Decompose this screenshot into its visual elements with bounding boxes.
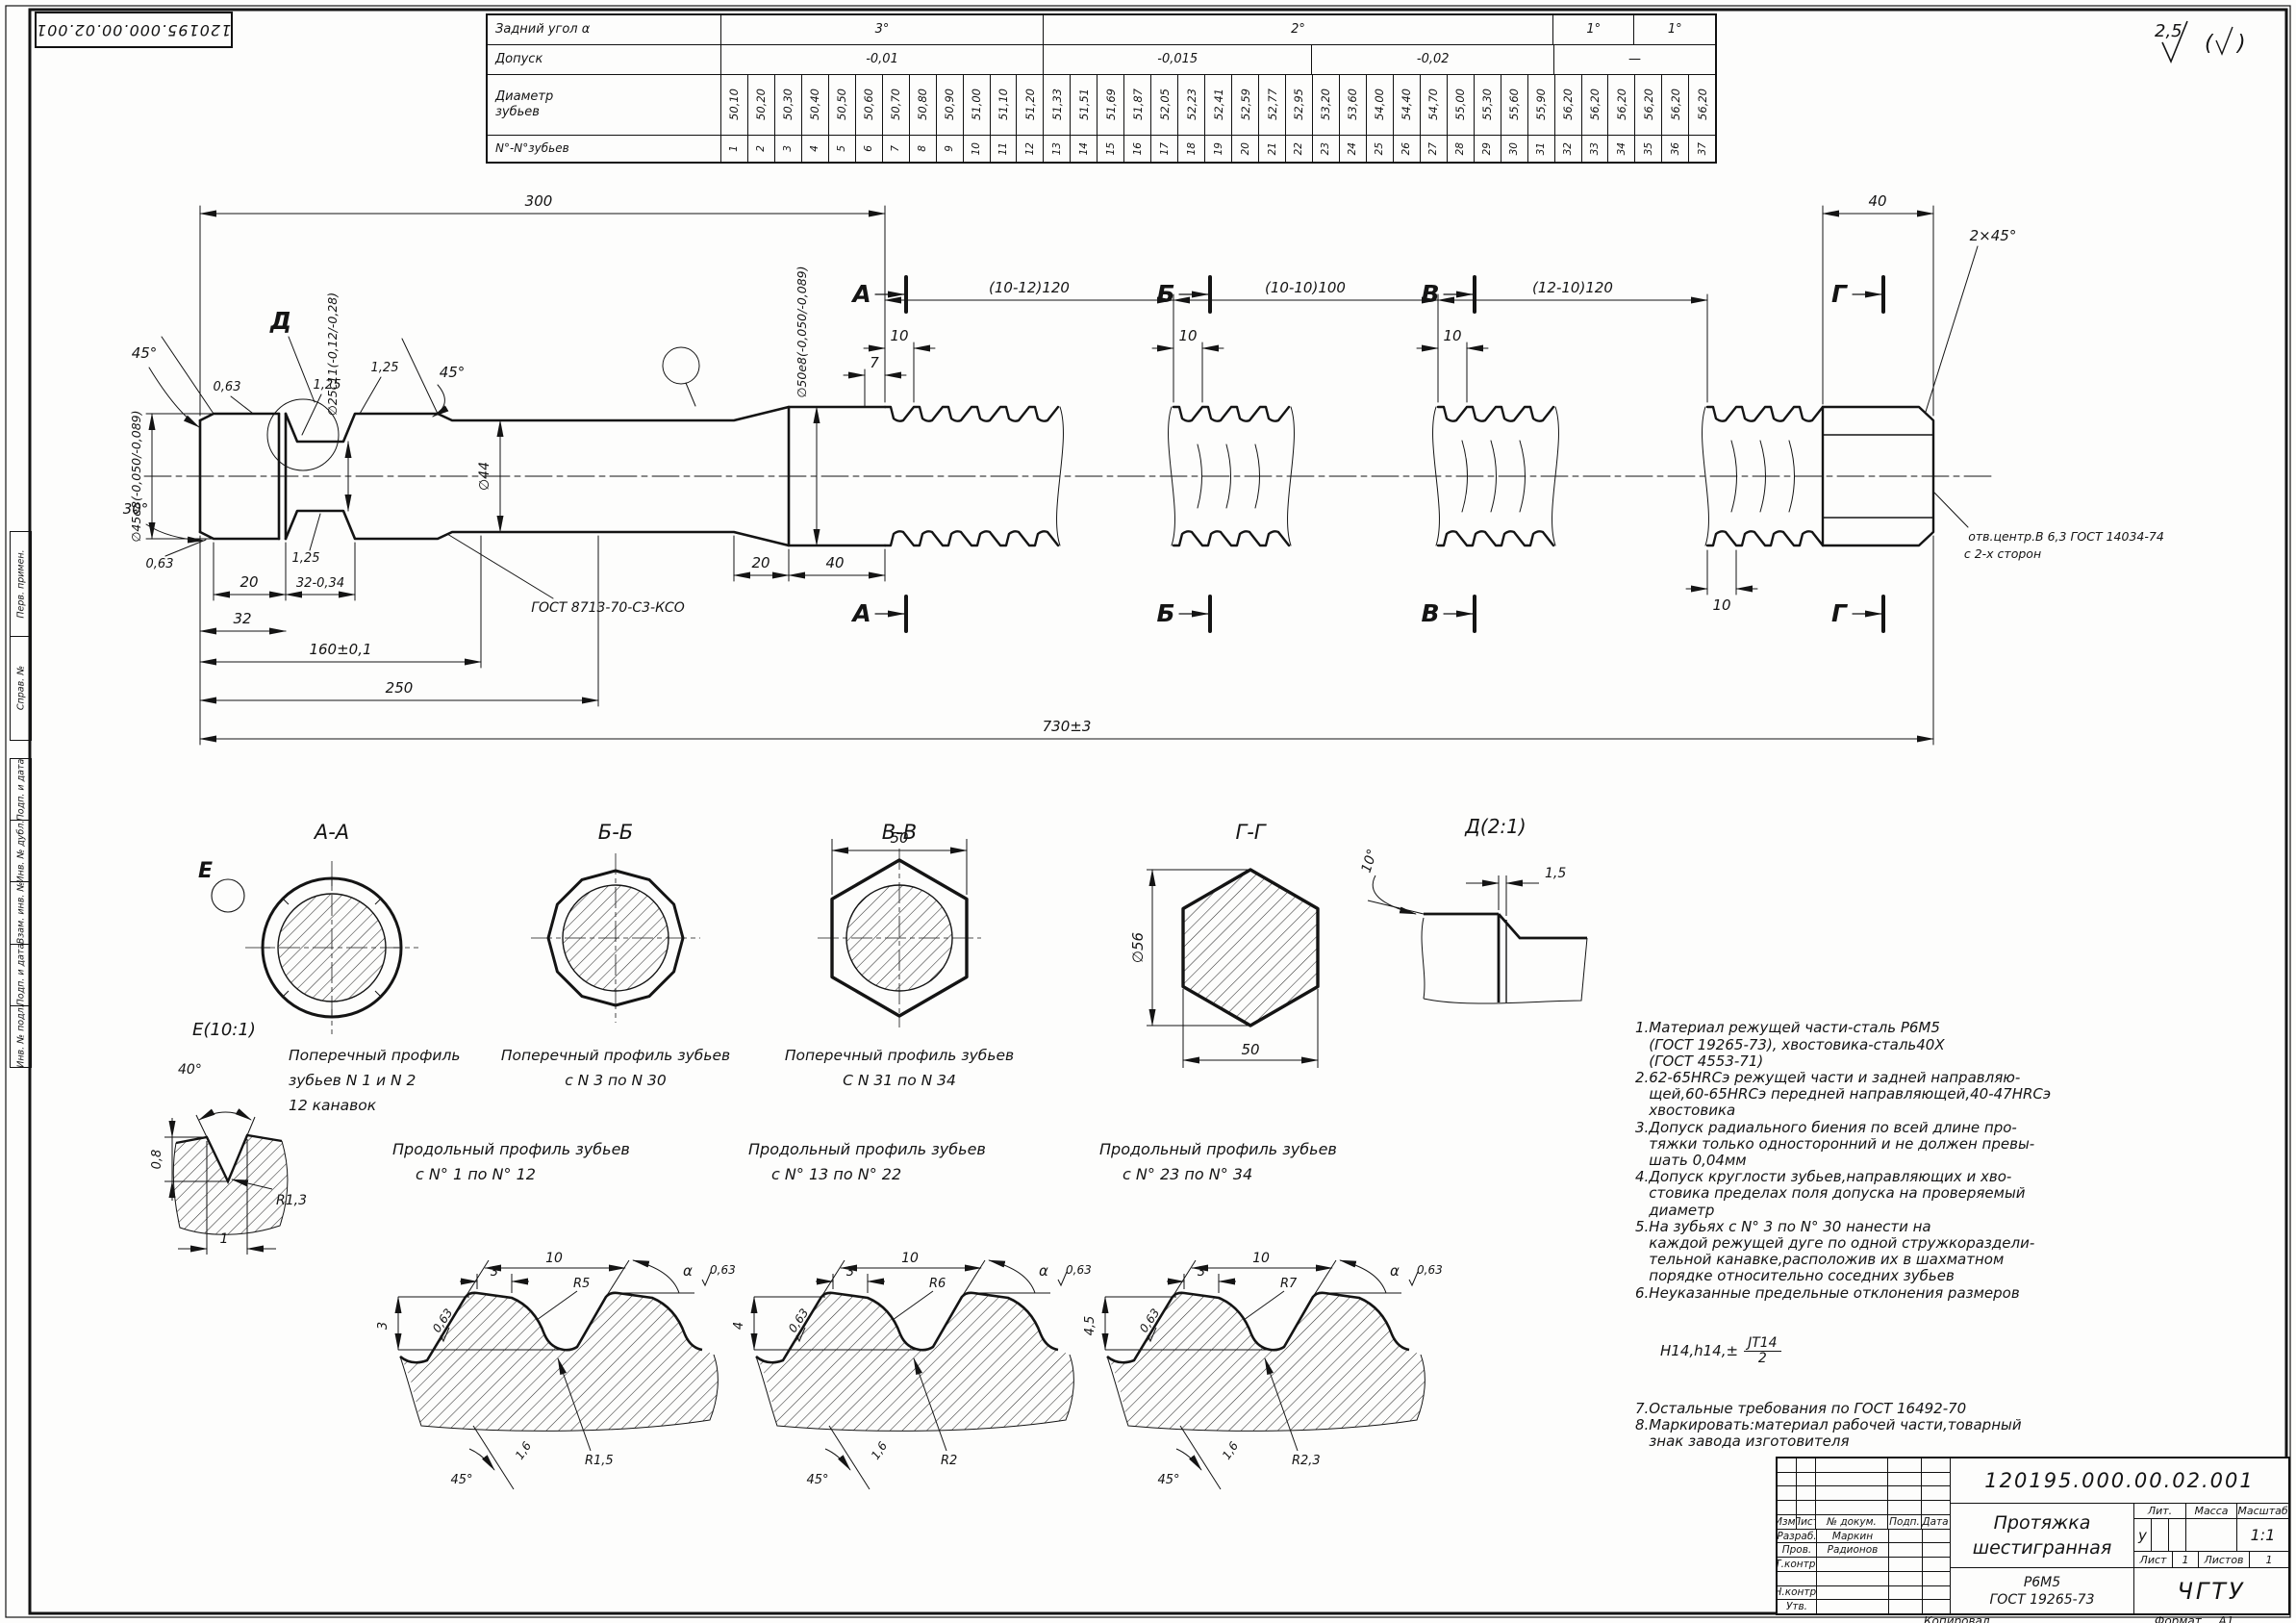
diameter-cell: 51,87 — [1124, 75, 1151, 136]
tb-sheets-value: 1 — [2250, 1552, 2288, 1568]
dia-50: ∅50e8(-0,050/-0,089) — [795, 266, 809, 398]
tooth-number-cell: 12 — [1017, 136, 1044, 162]
profile-1: 10 3 3 R5 0,63 α 0,63 45° 1,6 R1,5 — [376, 1251, 736, 1489]
diameter-cell: 51,20 — [1017, 75, 1044, 136]
tooth-number-cell: 23 — [1313, 136, 1340, 162]
drawing-sheet: А А Б Б В В Г Г Д 300 (10-12)120 (10-10)… — [0, 0, 2296, 1623]
tech-lines-b: 7.Остальные требования по ГОСТ 16492-708… — [1635, 1401, 2116, 1451]
section-letter-g-bottom: Г — [1831, 599, 1849, 627]
diameter-cell: 52,59 — [1232, 75, 1259, 136]
tooth-number-cell: 2 — [748, 136, 775, 162]
diameter-cell: 50,70 — [883, 75, 910, 136]
angle-group-3: 1° — [1553, 15, 1635, 44]
tolerance-group-3: -0,02 — [1312, 45, 1554, 74]
section-vv: В-В 50 Поперечный профиль зубьев С N 31 … — [785, 821, 1014, 1089]
diameter-cell: 55,00 — [1448, 75, 1475, 136]
tooth-number-cell: 13 — [1044, 136, 1071, 162]
diameter-cell: 52,77 — [1259, 75, 1286, 136]
dim-group1: (10-12)120 — [989, 279, 1070, 296]
angle-45-b: 45° — [440, 364, 466, 381]
dim-group2: (10-10)100 — [1265, 279, 1346, 296]
p2-alpha: α — [1039, 1262, 1048, 1280]
p3-rough-16: 1,6 — [1220, 1439, 1241, 1462]
p2-land: 3 — [846, 1265, 854, 1280]
profile1-title-1: Продольный профиль зубьев — [392, 1140, 630, 1158]
profiles-row: Продольный профиль зубьев с N° 1 по N° 1… — [376, 1140, 1443, 1489]
angle-45-a: 45° — [132, 344, 158, 362]
diameter-cell: 52,05 — [1151, 75, 1178, 136]
p2-height: 4 — [732, 1322, 746, 1330]
tech-line: каждой режущей дуге по одной стружкоразд… — [1635, 1235, 2116, 1252]
section-letter-g-top: Г — [1831, 280, 1849, 308]
tb-material: Р6М5 ГОСТ 19265-73 — [1950, 1568, 2134, 1613]
section-vv-caption-2: С N 31 по N 34 — [843, 1072, 956, 1089]
p3-gullet-radius: R2,3 — [1292, 1454, 1321, 1468]
p1-pitch: 10 — [545, 1251, 563, 1266]
p2-angle-45: 45° — [806, 1473, 828, 1487]
dim-7: 7 — [870, 354, 879, 371]
section-letter-v-top: В — [1421, 280, 1439, 308]
diameter-cell: 55,30 — [1475, 75, 1501, 136]
diameter-cell: 56,20 — [1689, 75, 1715, 136]
tooth-number-cell: 32 — [1555, 136, 1582, 162]
detail-letter-d: Д — [269, 307, 291, 335]
tb-sheet-value: 1 — [2173, 1552, 2199, 1568]
p2-rough-back: 0,63 — [1066, 1263, 1092, 1277]
section-aa-caption-3: 12 канавок — [289, 1097, 377, 1114]
tooth-number-cell: 28 — [1448, 136, 1475, 162]
dia-44: ∅44 — [477, 462, 492, 491]
diameter-cell: 52,41 — [1205, 75, 1232, 136]
detail-ee-angle: 40° — [178, 1062, 202, 1078]
tb-part-name-1: Протяжка — [1994, 1510, 2091, 1535]
tb-name-razrab: Маркин — [1817, 1530, 1889, 1543]
table-label-diameter: Диаметр зубьев — [488, 75, 721, 136]
section-aa-title: А-А — [313, 821, 349, 844]
tech-line: (ГОСТ 19265-73), хвостовика-сталь40Х — [1635, 1037, 2116, 1053]
tolerance-group-1: -0,01 — [721, 45, 1044, 74]
profile3-title-1: Продольный профиль зубьев — [1099, 1140, 1337, 1158]
main-view: А А Б Б В В Г Г Д 300 (10-12)120 (10-10)… — [123, 192, 2164, 745]
p3-pitch: 10 — [1252, 1251, 1270, 1266]
dim-730: 730±3 — [1043, 718, 1092, 735]
p3-land: 3 — [1198, 1265, 1205, 1280]
p1-angle-45: 45° — [450, 1473, 472, 1487]
tech-line: 6.Неуказанные предельные отклонения разм… — [1635, 1285, 2116, 1302]
footer-format-label: Формат — [2155, 1614, 2202, 1623]
section-aa-caption-2: зубьев N 1 и N 2 — [289, 1072, 416, 1089]
footer-format: Формат А1 — [2155, 1614, 2233, 1623]
tech-line: 5.На зубьях с N° 3 по N° 30 нанести на — [1635, 1219, 2116, 1235]
paren-close: ) — [2235, 32, 2246, 56]
p3-back-radius: R7 — [1280, 1277, 1298, 1291]
section-aa: А-А Е Поперечный профиль зубьев N 1 и N … — [198, 821, 461, 1114]
tooth-number-cell: 25 — [1367, 136, 1394, 162]
doc-number-rotated: 120195.000.00.02.001 — [36, 21, 231, 39]
tb-lit-label: Лит. — [2134, 1504, 2186, 1519]
tooth-number-cell: 33 — [1582, 136, 1609, 162]
tooth-number-cell: 24 — [1340, 136, 1367, 162]
diameter-cell: 51,00 — [964, 75, 991, 136]
dim-40-b: 40 — [825, 554, 844, 571]
margin-stamps-top: Перв. примен.Справ. № — [10, 531, 32, 741]
tooth-number-cell: 31 — [1528, 136, 1555, 162]
dim-160: 160±0,1 — [309, 641, 371, 658]
diameter-cell: 56,20 — [1662, 75, 1689, 136]
tb-col-izm: Изм. — [1778, 1515, 1797, 1529]
diameter-cell: 50,80 — [910, 75, 937, 136]
margin-stamp-cell: Справ. № — [11, 637, 31, 741]
section-vv-caption-1: Поперечный профиль зубьев — [785, 1047, 1014, 1064]
tech-line: 8.Маркировать:материал рабочей части,тов… — [1635, 1417, 2116, 1433]
tb-part-name-2: шестигранная — [1973, 1535, 2112, 1560]
dim-20-a: 20 — [240, 573, 258, 591]
detail-dd-angle: 10° — [1359, 848, 1381, 875]
p1-rough-16: 1,6 — [513, 1439, 534, 1462]
dim-32-tol: 32-0,34 — [296, 576, 344, 591]
table-label-angle: Задний угол α — [488, 15, 721, 44]
detail-dd-dim: 1,5 — [1545, 866, 1566, 881]
section-gg: Г-Г ∅56 50 — [1129, 821, 1318, 1068]
tooth-number-cell: 9 — [937, 136, 964, 162]
tooth-number-cell: 26 — [1394, 136, 1421, 162]
dim-32: 32 — [233, 610, 251, 627]
margin-stamps-bottom: Подп. и датаИнв. № дубл.Взам. инв. №Подп… — [10, 758, 32, 1068]
dim-250: 250 — [386, 679, 414, 697]
section-bb-caption-2: с N 3 по N 30 — [565, 1072, 667, 1089]
tooth-number-cell: 35 — [1635, 136, 1662, 162]
tech-line: 3.Допуск радиального биения по всей длин… — [1635, 1120, 2116, 1136]
tb-mass-label: Масса — [2186, 1504, 2237, 1519]
tb-part-name: Протяжка шестигранная — [1950, 1504, 2134, 1568]
diameter-cell: 52,95 — [1286, 75, 1313, 136]
tech-fraction-line: H14,h14,± JT14 2 — [1635, 1334, 2116, 1367]
p1-land: 3 — [491, 1265, 498, 1280]
p1-rough-back: 0,63 — [710, 1263, 736, 1277]
angle-group-1: 3° — [721, 15, 1044, 44]
tech-line: стовика пределах поля допуска на проверя… — [1635, 1185, 2116, 1202]
tech-line: 7.Остальные требования по ГОСТ 16492-70 — [1635, 1401, 2116, 1417]
title-block: Изм. Лист № докум. Подп. Дата Разраб.Мар… — [1776, 1457, 2290, 1615]
angle-group-4: 1° — [1634, 15, 1715, 44]
tooth-number-cell: 20 — [1232, 136, 1259, 162]
detail-letter-e: Е — [198, 859, 213, 883]
p2-pitch: 10 — [901, 1251, 919, 1266]
diameter-cell: 56,20 — [1555, 75, 1582, 136]
paren-open: ( — [2205, 32, 2214, 56]
tb-col-dokum: № докум. — [1816, 1515, 1888, 1529]
dia-45: ∅45e8(-0,050/-0,089) — [129, 411, 143, 543]
tech-lines-a: 1.Материал режущей части-сталь Р6М5 (ГОС… — [1635, 1020, 2116, 1301]
diameter-cell: 51,69 — [1098, 75, 1124, 136]
center-hole-note-2: с 2-х сторон — [1964, 546, 2041, 561]
section-bb-caption-1: Поперечный профиль зубьев — [501, 1047, 730, 1064]
tech-line: знак завода изготовителя — [1635, 1433, 2116, 1450]
tooth-number-cell: 16 — [1124, 136, 1151, 162]
tech-frac-denominator: 2 — [1758, 1352, 1767, 1366]
tooth-number-cell: 15 — [1098, 136, 1124, 162]
tech-frac-numerator: JT14 — [1744, 1336, 1781, 1352]
detail-ee-width: 1 — [220, 1231, 229, 1247]
section-vv-dim-50: 50 — [890, 829, 908, 847]
tooth-number-cell: 1 — [721, 136, 748, 162]
diameter-cell: 51,10 — [991, 75, 1018, 136]
doc-number-box: 120195.000.00.02.001 — [35, 12, 233, 48]
tooth-number-cell: 19 — [1205, 136, 1232, 162]
table-label-numbers: N°-N°зубьев — [488, 136, 721, 162]
diameter-cell: 53,60 — [1340, 75, 1367, 136]
tooth-number-cell: 37 — [1689, 136, 1715, 162]
diameter-cell: 54,00 — [1367, 75, 1394, 136]
footer-copied: Копировал — [1924, 1614, 1990, 1623]
tooth-number-cell: 3 — [775, 136, 802, 162]
tech-line: шать 0,04мм — [1635, 1153, 2116, 1169]
p3-angle-45: 45° — [1157, 1473, 1179, 1487]
dim-300: 300 — [525, 192, 553, 210]
diameter-cell: 55,60 — [1501, 75, 1528, 136]
tb-sheets-label: Листов — [2199, 1552, 2250, 1568]
margin-stamp-cell: Перв. примен. — [11, 532, 31, 637]
profile2-title-1: Продольный профиль зубьев — [748, 1140, 986, 1158]
rough-063-a: 0,63 — [214, 380, 241, 394]
tech-line: тяжки только односторонний и не должен п… — [1635, 1136, 2116, 1153]
detail-ee-radius: R1,3 — [276, 1193, 307, 1208]
detail-ee: Е(10:1) 40° 0,8 1 R1 — [150, 1020, 307, 1255]
p1-gullet-radius: R1,5 — [585, 1454, 614, 1468]
tb-scale-label: Масштаб — [2237, 1504, 2288, 1519]
tooth-number-cell: 30 — [1501, 136, 1528, 162]
section-bb: Б-Б Поперечный профиль зубьев с N 3 по N… — [501, 821, 730, 1089]
tooth-number-cell: 36 — [1662, 136, 1689, 162]
diameter-cell: 50,90 — [937, 75, 964, 136]
section-gg-dia-56: ∅56 — [1129, 932, 1147, 963]
section-letter-v-bottom: В — [1421, 599, 1439, 627]
tech-line: 2.62-65HRCэ режущей части и задней напра… — [1635, 1070, 2116, 1086]
p3-alpha: α — [1390, 1262, 1400, 1280]
diameter-cell: 50,20 — [748, 75, 775, 136]
dim-group3: (12-10)120 — [1532, 279, 1613, 296]
tb-col-podp: Подп. — [1888, 1515, 1922, 1529]
title-block-signatures: Изм. Лист № докум. Подп. Дата Разраб.Мар… — [1778, 1458, 1950, 1613]
diameter-cell: 54,70 — [1421, 75, 1448, 136]
tooth-number-cell: 6 — [856, 136, 883, 162]
tooth-parameter-table: Задний угол α 3° 2° 1° 1° Допуск -0,01 -… — [486, 13, 1717, 164]
tb-lit-value: у — [2134, 1519, 2152, 1552]
p2-rough-16: 1,6 — [869, 1439, 890, 1462]
tooth-number-cells: 1234567891011121314151617181920212223242… — [721, 136, 1715, 162]
tb-role-razrab: Разраб. — [1778, 1530, 1817, 1543]
tooth-number-cell: 21 — [1259, 136, 1286, 162]
tech-line: хвостовика — [1635, 1103, 2116, 1119]
profile1-title-2: с N° 1 по N° 12 — [416, 1165, 536, 1183]
tooth-number-cell: 29 — [1475, 136, 1501, 162]
p1-alpha: α — [683, 1262, 693, 1280]
margin-stamp-cell: Взам. инв. № — [11, 882, 31, 944]
profile3-title-2: с N° 23 по N° 34 — [1123, 1165, 1252, 1183]
table-label-diameter-1: Диаметр — [495, 89, 720, 105]
tb-col-list: Лист — [1797, 1515, 1816, 1529]
tooth-number-cell: 14 — [1071, 136, 1098, 162]
diameter-cell: 50,40 — [802, 75, 829, 136]
title-block-header-row: Изм. Лист № докум. Подп. Дата — [1778, 1515, 1950, 1530]
diameter-cell: 54,40 — [1394, 75, 1421, 136]
technical-requirements: 1.Материал режущей части-сталь Р6М5 (ГОС… — [1635, 987, 2116, 1466]
table-label-diameter-2: зубьев — [495, 105, 720, 120]
detail-dd: Д(2:1) 10° 1,5 — [1359, 815, 1587, 1003]
section-aa-caption-1: Поперечный профиль — [289, 1047, 461, 1064]
p1-back-radius: R5 — [573, 1277, 590, 1291]
rough-125-c: 1,25 — [371, 361, 399, 375]
tech-line: щей,60-65HRCэ передней направляющей,40-4… — [1635, 1086, 2116, 1103]
diameter-cells: 50,1050,2050,3050,4050,5050,6050,7050,80… — [721, 75, 1715, 136]
dim-20-b: 20 — [751, 554, 770, 571]
rough-063-b: 0,63 — [146, 557, 174, 571]
tb-scale-value: 1:1 — [2237, 1519, 2288, 1552]
p3-height: 4,5 — [1083, 1316, 1098, 1336]
tooth-number-cell: 17 — [1151, 136, 1178, 162]
diameter-cell: 53,20 — [1313, 75, 1340, 136]
rough-125-b: 1,25 — [292, 551, 320, 566]
section-bb-title: Б-Б — [598, 821, 633, 844]
tech-line: тельной канавке,расположив их в шахматно… — [1635, 1252, 2116, 1268]
tooth-number-cell: 10 — [964, 136, 991, 162]
dim-10-d: 10 — [1712, 596, 1730, 614]
tooth-number-cell: 8 — [910, 136, 937, 162]
tb-organization: ЧГТУ — [2134, 1568, 2288, 1613]
diameter-cell: 55,90 — [1528, 75, 1555, 136]
tooth-number-cell: 27 — [1421, 136, 1448, 162]
tb-role-tkontr: Т.контр. — [1778, 1558, 1817, 1571]
tooth-number-cell: 5 — [829, 136, 856, 162]
diameter-cell: 50,50 — [829, 75, 856, 136]
footer-format-value: А1 — [2219, 1614, 2234, 1623]
tooth-number-cell: 4 — [802, 136, 829, 162]
section-letter-a-bottom: А — [850, 599, 870, 627]
section-letter-b-bottom: Б — [1156, 599, 1174, 627]
margin-stamp-cell: Инв. № дубл. — [11, 821, 31, 882]
section-gg-dim-50: 50 — [1241, 1041, 1259, 1058]
tb-material-1: Р6М5 — [2024, 1574, 2060, 1591]
section-gg-title: Г-Г — [1236, 821, 1268, 844]
diameter-cell: 50,30 — [775, 75, 802, 136]
tech-line: диаметр — [1635, 1203, 2116, 1219]
angle-group-2: 2° — [1044, 15, 1553, 44]
p1-height: 3 — [376, 1322, 391, 1330]
section-marks: А А Б Б В В Г Г Д — [269, 277, 1883, 631]
dim-10-c: 10 — [1443, 327, 1461, 344]
section-letter-b-top: Б — [1156, 280, 1174, 308]
roughness-check-small-icon — [2216, 27, 2233, 54]
tooth-number-cell: 7 — [883, 136, 910, 162]
main-dim-texts: 300 (10-12)120 (10-10)100 (12-10)120 40 … — [123, 192, 2164, 735]
diameter-cell: 51,33 — [1044, 75, 1071, 136]
profile-2: 10 3 4 R6 0,63 α 0,63 45° 1,6 R2 — [732, 1251, 1092, 1489]
tooth-number-cell: 18 — [1178, 136, 1205, 162]
tooth-number-cell: 22 — [1286, 136, 1313, 162]
tb-name-prov: Радионов — [1817, 1543, 1889, 1557]
dia-25: ∅25c11(-0,12/-0,28) — [325, 292, 340, 416]
detail-ee-title: Е(10:1) — [192, 1020, 256, 1040]
diameter-cell: 52,23 — [1178, 75, 1205, 136]
tb-doc-number: 120195.000.00.02.001 — [1950, 1458, 2288, 1504]
diameter-cell: 56,20 — [1635, 75, 1662, 136]
tb-role-prov: Пров. — [1778, 1543, 1817, 1557]
dim-10-b: 10 — [1178, 327, 1197, 344]
tooth-number-cell: 11 — [991, 136, 1018, 162]
margin-stamp-cell: Подп. и дата — [11, 759, 31, 821]
margin-stamp-cell: Подп. и дата — [11, 945, 31, 1006]
tech-line: (ГОСТ 4553-71) — [1635, 1053, 2116, 1070]
profile2-title-2: с N° 13 по N° 22 — [771, 1165, 901, 1183]
p2-back-radius: R6 — [929, 1277, 946, 1291]
tb-sheet-label: Лист — [2134, 1552, 2173, 1568]
tb-col-data: Дата — [1922, 1515, 1949, 1529]
diameter-cell: 50,10 — [721, 75, 748, 136]
tech-line: 4.Допуск круглости зубьев,направляющих и… — [1635, 1169, 2116, 1185]
dim-chamfer: 2×45° — [1970, 227, 2017, 244]
tech-line: 1.Материал режущей части-сталь Р6М5 — [1635, 1020, 2116, 1036]
tolerance-group-4: — — [1554, 45, 1715, 74]
profile-3: 10 3 4,5 R7 0,63 α 0,63 45° 1,6 R2,3 — [1083, 1251, 1443, 1489]
weld-note: ГОСТ 8713-70-С3-КСО — [531, 600, 685, 616]
dim-10-a: 10 — [890, 327, 908, 344]
tb-role-utv: Утв. — [1778, 1600, 1817, 1613]
table-label-tolerance: Допуск — [488, 45, 721, 74]
p2-gullet-radius: R2 — [941, 1454, 957, 1468]
sections-row: А-А Е Поперечный профиль зубьев N 1 и N … — [150, 815, 1587, 1255]
tb-role-nkontr: Н.контр. — [1778, 1586, 1817, 1600]
center-hole-note-1: отв.центр.В 6,3 ГОСТ 14034-74 — [1968, 529, 2164, 544]
detail-dd-title: Д(2:1) — [1464, 815, 1526, 838]
tb-mass-value — [2186, 1519, 2237, 1552]
diameter-cell: 51,51 — [1071, 75, 1098, 136]
tech-frac-prefix: H14,h14,± — [1660, 1343, 1738, 1359]
tolerance-group-2: -0,015 — [1044, 45, 1312, 74]
diameter-cell: 50,60 — [856, 75, 883, 136]
roughness-value: 2,5 — [2155, 21, 2182, 41]
general-roughness: 2,5 ( ) — [2155, 21, 2246, 62]
section-letter-a-top: А — [850, 280, 870, 308]
diameter-cell: 56,20 — [1582, 75, 1609, 136]
p3-rough-back: 0,63 — [1417, 1263, 1443, 1277]
tb-material-2: ГОСТ 19265-73 — [1990, 1591, 2095, 1609]
tech-line: порядке относительно соседних зубьев — [1635, 1268, 2116, 1284]
dim-40-tail: 40 — [1868, 192, 1886, 210]
diameter-cell: 56,20 — [1608, 75, 1635, 136]
tooth-number-cell: 34 — [1608, 136, 1635, 162]
detail-ee-depth: 0,8 — [150, 1150, 164, 1170]
margin-stamp-cell: Инв. № подл. — [11, 1006, 31, 1067]
